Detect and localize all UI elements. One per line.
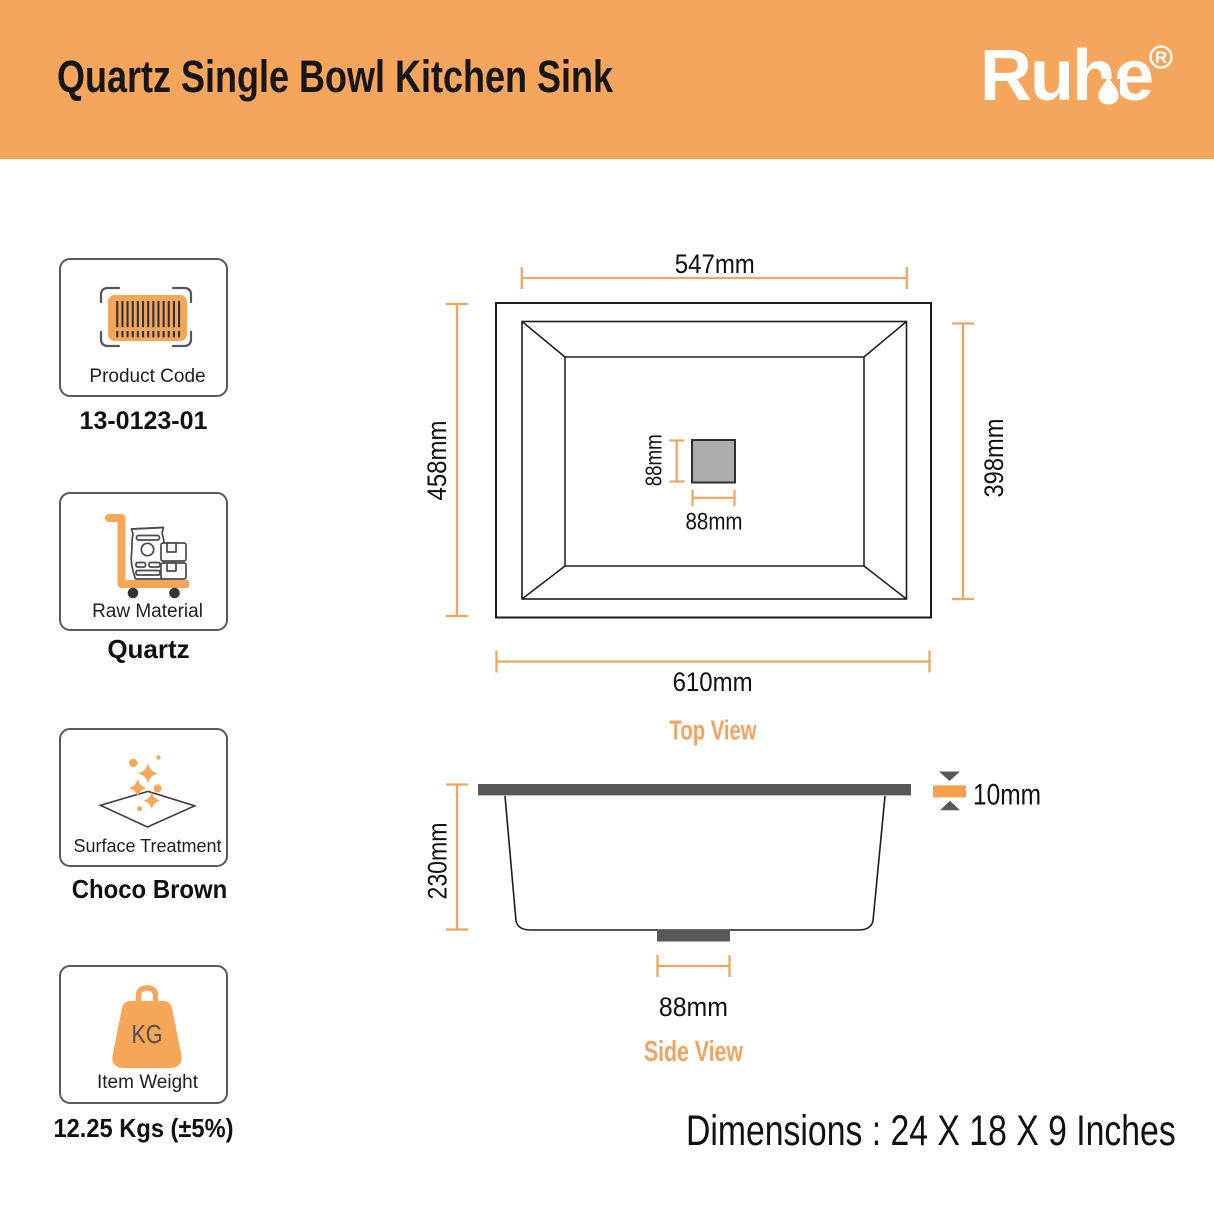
svg-text:88mm: 88mm: [641, 434, 667, 486]
svg-text:230mm: 230mm: [422, 823, 452, 900]
svg-text:610mm: 610mm: [673, 667, 753, 697]
svg-text:88mm: 88mm: [659, 992, 728, 1022]
svg-text:547mm: 547mm: [675, 249, 755, 279]
svg-text:KG: KG: [132, 1019, 163, 1049]
svg-text:398mm: 398mm: [979, 419, 1009, 498]
svg-text:Ruhe: Ruhe: [980, 38, 1152, 116]
svg-text:Side View: Side View: [644, 1036, 743, 1068]
svg-text:Top View: Top View: [670, 715, 757, 746]
svg-text:10mm: 10mm: [973, 779, 1041, 812]
svg-text:458mm: 458mm: [422, 421, 452, 501]
svg-text:R: R: [1155, 48, 1167, 67]
svg-text:88mm: 88mm: [686, 509, 743, 536]
